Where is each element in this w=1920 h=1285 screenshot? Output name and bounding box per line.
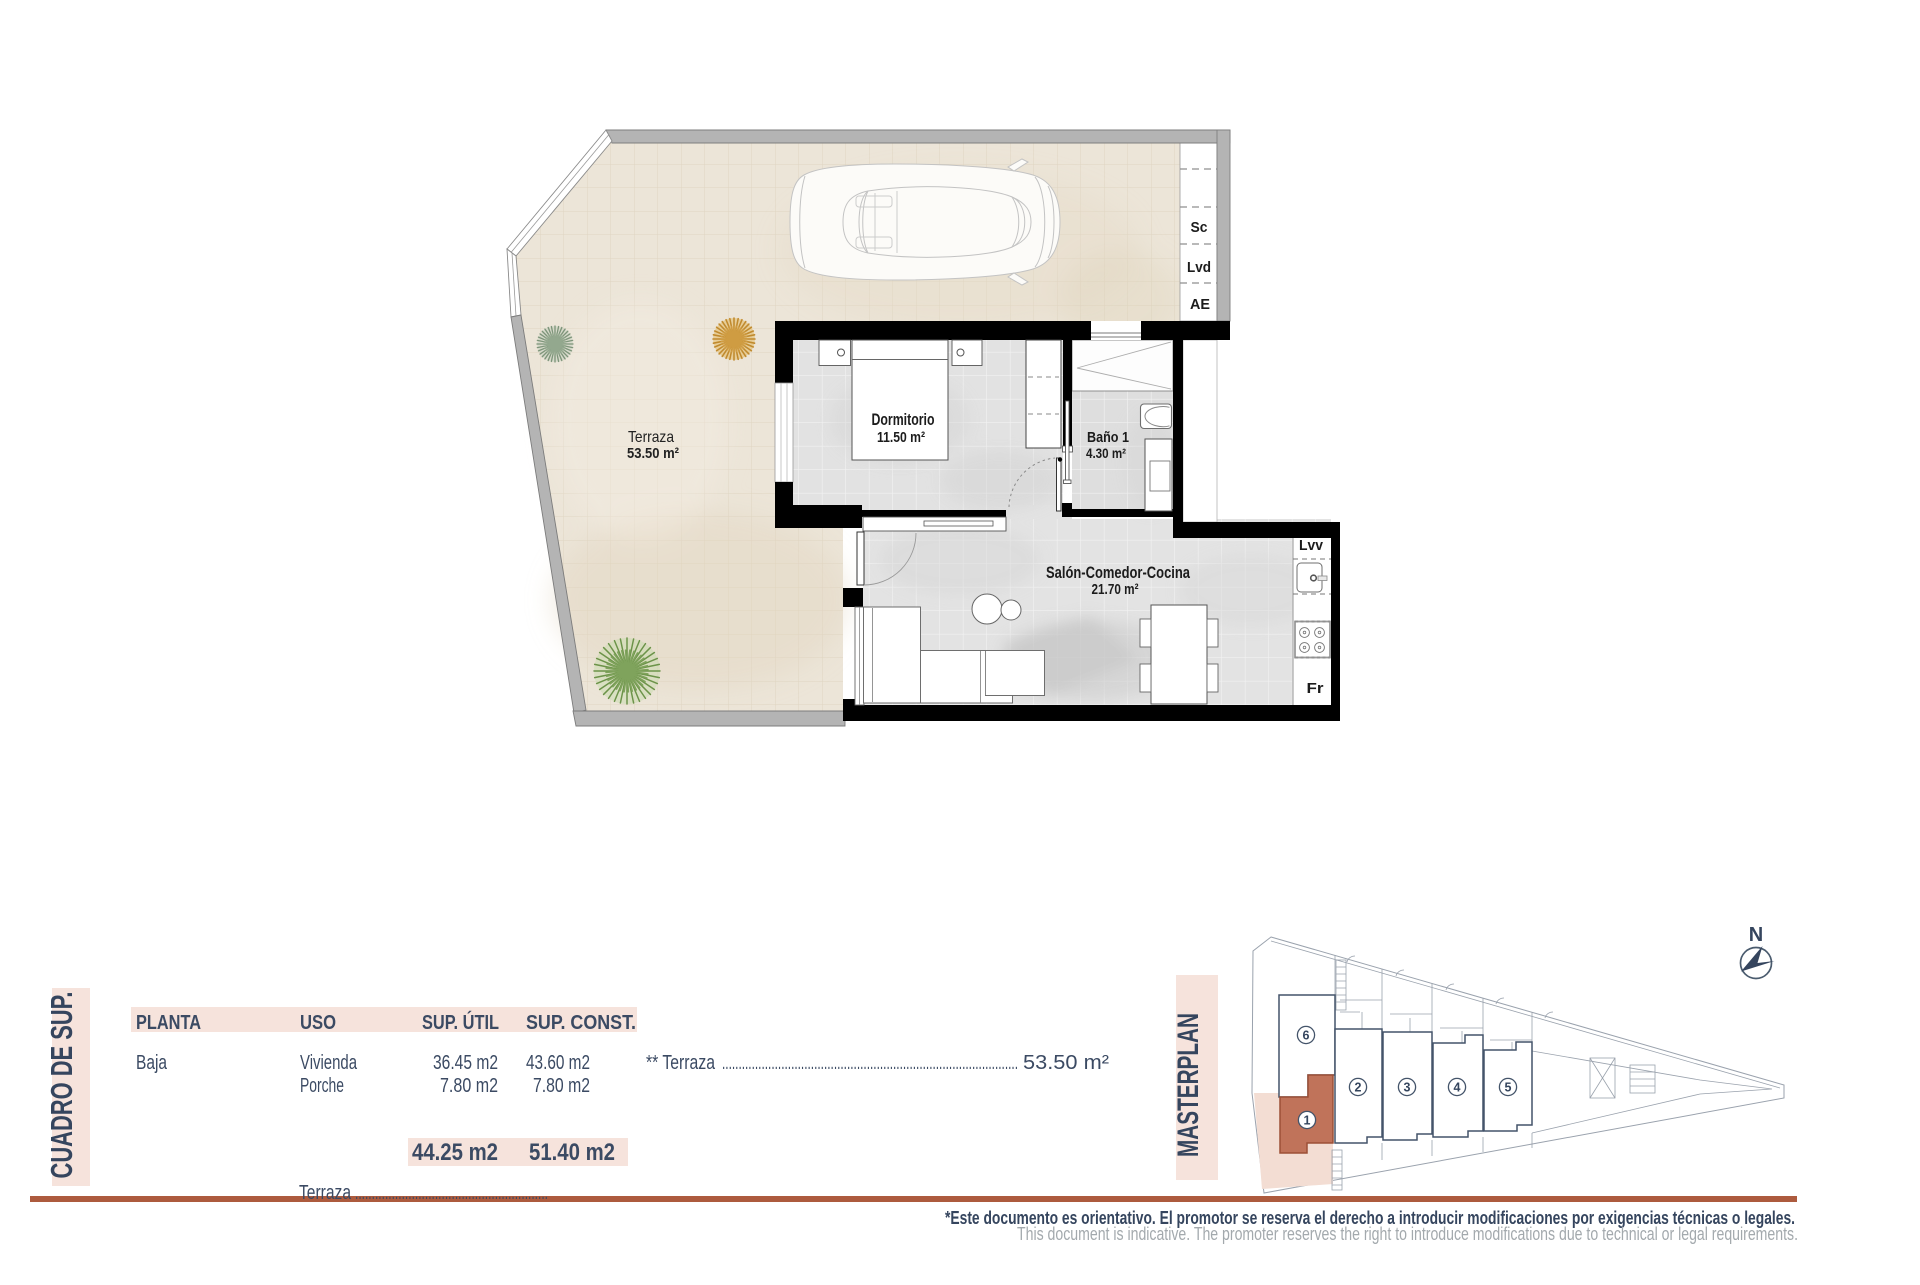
svg-text:2: 2	[1355, 1081, 1362, 1095]
svg-text:Porche: Porche	[300, 1075, 344, 1097]
svg-text:4.30 m²: 4.30 m²	[1086, 445, 1126, 461]
svg-text:AE: AE	[1190, 296, 1210, 313]
svg-text:7.80 m2: 7.80 m2	[440, 1075, 498, 1097]
svg-text:Vivienda: Vivienda	[300, 1052, 358, 1074]
svg-text:PLANTA: PLANTA	[136, 1012, 201, 1034]
svg-text:53.50 m²: 53.50 m²	[1023, 1052, 1109, 1074]
svg-text:51.40 m2: 51.40 m2	[529, 1139, 615, 1166]
svg-text:4: 4	[1454, 1081, 1461, 1095]
svg-text:21.70 m²: 21.70 m²	[1092, 581, 1139, 598]
svg-text:3: 3	[1404, 1081, 1411, 1095]
svg-text:Lvd: Lvd	[1187, 259, 1211, 276]
svg-text:Baño 1: Baño 1	[1087, 429, 1129, 446]
svg-text:43.60 m2: 43.60 m2	[526, 1052, 590, 1074]
svg-text:Baja: Baja	[136, 1052, 168, 1074]
svg-text:7.80 m2: 7.80 m2	[533, 1075, 590, 1097]
svg-text:SUP. CONST.: SUP. CONST.	[526, 1012, 636, 1034]
svg-text:..............................: ........................................…	[355, 1182, 548, 1204]
svg-text:** Terraza: ** Terraza	[646, 1052, 716, 1074]
svg-text:11.50 m²: 11.50 m²	[877, 429, 925, 446]
svg-text:Dormitorio: Dormitorio	[872, 410, 935, 429]
svg-text:..............................: ........................................…	[722, 1052, 1018, 1074]
svg-text:5: 5	[1505, 1081, 1512, 1095]
svg-text:Fr: Fr	[1307, 680, 1324, 697]
svg-text:Sc: Sc	[1191, 219, 1208, 236]
svg-text:53.50 m²: 53.50 m²	[627, 445, 679, 462]
svg-text:1: 1	[1304, 1114, 1311, 1128]
svg-text:36.45 m2: 36.45 m2	[433, 1052, 498, 1074]
svg-text:CUADRO DE SUP.: CUADRO DE SUP.	[44, 992, 79, 1179]
svg-text:44.25 m2: 44.25 m2	[412, 1139, 498, 1166]
svg-text:Terraza: Terraza	[628, 429, 674, 446]
svg-text:6: 6	[1303, 1029, 1310, 1043]
svg-text:Lvv: Lvv	[1299, 537, 1324, 554]
svg-text:N: N	[1749, 924, 1763, 946]
svg-text:Salón-Comedor-Cocina: Salón-Comedor-Cocina	[1046, 563, 1190, 582]
svg-text:This document is indicative. T: This document is indicative. The promote…	[1017, 1224, 1798, 1244]
svg-text:SUP. ÚTIL: SUP. ÚTIL	[422, 1010, 499, 1034]
svg-text:MASTERPLAN: MASTERPLAN	[1172, 1013, 1205, 1157]
svg-text:USO: USO	[300, 1012, 336, 1034]
svg-text:Terraza: Terraza	[299, 1182, 352, 1204]
